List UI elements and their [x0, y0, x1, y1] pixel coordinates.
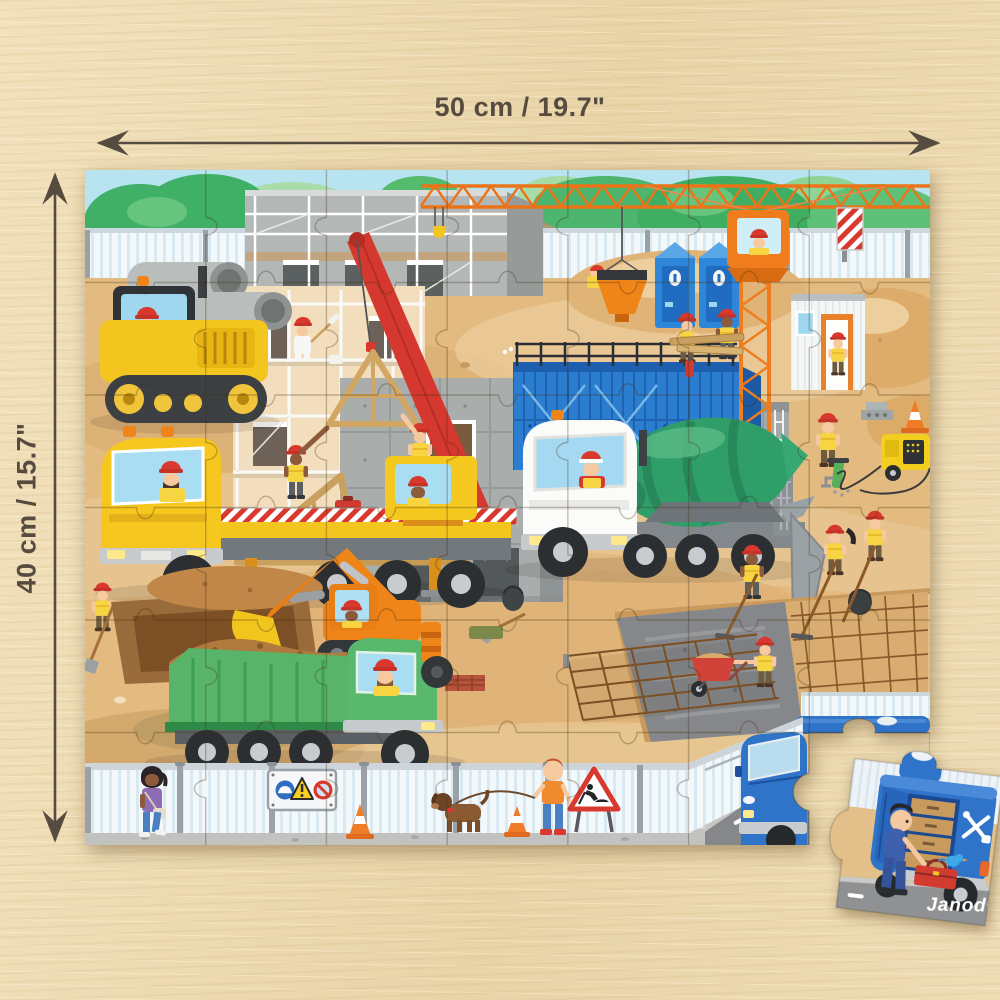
van-roof-strip	[795, 692, 930, 734]
width-dimension-label: 50 cm / 19.7"	[95, 92, 945, 123]
crane-truck-cab	[99, 426, 223, 564]
crane-cab	[727, 210, 789, 282]
mixer-cab	[521, 410, 647, 550]
loose-puzzle-piece: Janod®	[805, 725, 1000, 937]
crane-hook	[433, 226, 445, 238]
height-dimension-label: 40 cm / 15.7"	[12, 423, 43, 594]
site-office	[791, 294, 865, 390]
blue-van-front	[735, 732, 807, 845]
striped-marker	[837, 208, 863, 250]
jigsaw-puzzle	[85, 170, 930, 845]
crane-upper-cab	[385, 456, 477, 520]
